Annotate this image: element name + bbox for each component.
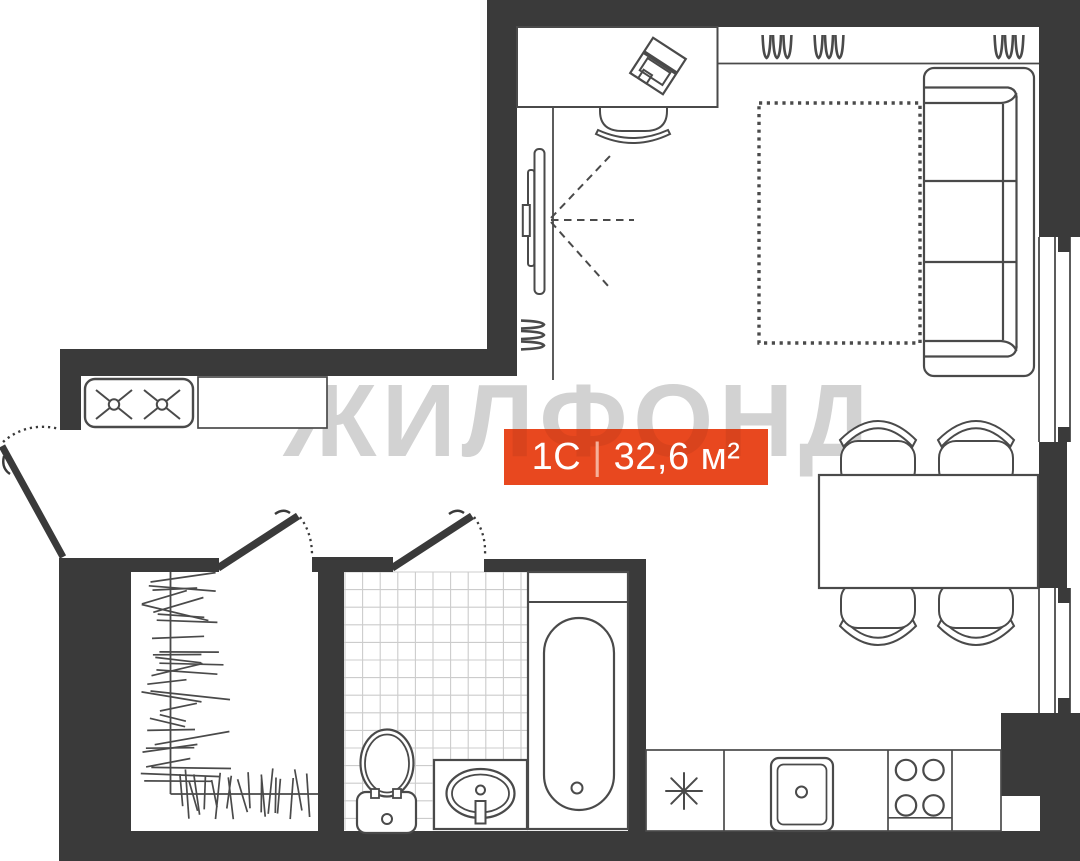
svg-text:1С | 32,6 м²: 1С | 32,6 м² bbox=[532, 436, 741, 478]
